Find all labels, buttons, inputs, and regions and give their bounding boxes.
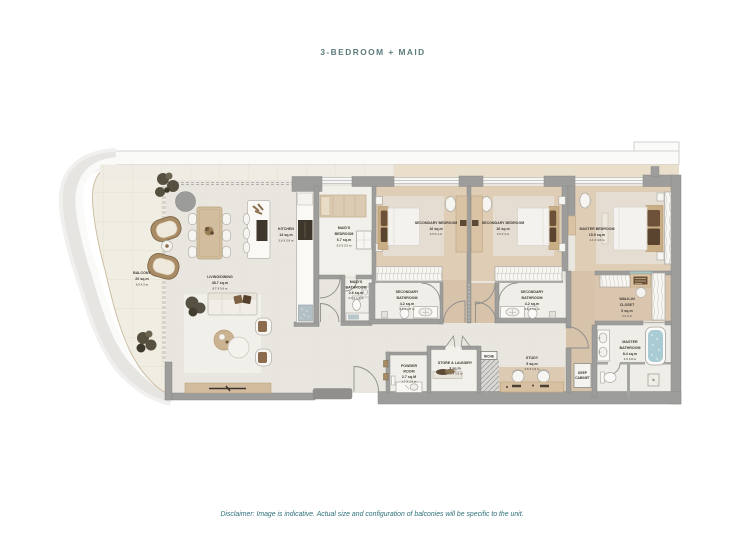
svg-text:BATHROOM: BATHROOM xyxy=(522,296,543,300)
svg-text:BALCONY: BALCONY xyxy=(133,271,151,275)
svg-text:SECONDARY BEDROOM: SECONDARY BEDROOM xyxy=(482,221,525,225)
svg-text:16 sq.m: 16 sq.m xyxy=(429,227,442,231)
svg-text:CABINET: CABINET xyxy=(575,376,590,380)
svg-text:1.7 X 1.6 m: 1.7 X 1.6 m xyxy=(402,380,417,384)
svg-text:WALK-IN: WALK-IN xyxy=(619,297,635,301)
svg-text:MASTER BEDROOM: MASTER BEDROOM xyxy=(580,227,615,231)
svg-text:BATHROOM: BATHROOM xyxy=(620,346,641,350)
svg-text:3-BEDROOM + MAID: 3-BEDROOM + MAID xyxy=(320,47,425,57)
svg-text:6 sq.m: 6 sq.m xyxy=(621,309,632,313)
svg-text:4.1 X 3.8 m: 4.1 X 3.8 m xyxy=(590,238,605,242)
svg-text:4.5 X 4 m: 4.5 X 4 m xyxy=(430,232,443,236)
svg-text:3.0 X 2.5 m: 3.0 X 2.5 m xyxy=(337,244,352,248)
svg-text:9.5 X 2 m: 9.5 X 2 m xyxy=(136,283,149,287)
svg-text:BATHROOM: BATHROOM xyxy=(397,296,418,300)
svg-text:8.4 sq.m: 8.4 sq.m xyxy=(623,352,637,356)
svg-text:2.8 X 1.5 m: 2.8 X 1.5 m xyxy=(400,307,415,311)
svg-text:15.5 sq.m: 15.5 sq.m xyxy=(589,233,605,237)
svg-text:CLOSET: CLOSET xyxy=(620,303,635,307)
svg-text:4.5 X 4 m: 4.5 X 4 m xyxy=(497,232,510,236)
svg-text:48.7 sq.m: 48.7 sq.m xyxy=(212,281,228,285)
svg-text:5.9 X 2.9 m: 5.9 X 2.9 m xyxy=(279,239,294,243)
svg-text:Disclaimer: Image is indicativ: Disclaimer: Image is indicative. Actual … xyxy=(220,511,523,518)
svg-text:NICHE: NICHE xyxy=(484,355,495,359)
svg-text:16 sq.m: 16 sq.m xyxy=(496,227,509,231)
svg-text:BEDROOM: BEDROOM xyxy=(335,232,354,236)
svg-text:DEEP: DEEP xyxy=(578,371,588,375)
svg-text:STORE & LAUNDRY: STORE & LAUNDRY xyxy=(438,361,473,365)
svg-text:2.8 X 1.8 m: 2.8 X 1.8 m xyxy=(525,367,540,371)
svg-text:6.7 sq.m: 6.7 sq.m xyxy=(337,238,351,242)
svg-text:ROOM: ROOM xyxy=(403,370,414,374)
svg-text:3 sq.m: 3 sq.m xyxy=(449,367,460,371)
svg-text:POWDER: POWDER xyxy=(401,364,418,368)
svg-text:MAID'S: MAID'S xyxy=(350,280,363,284)
svg-text:8.7 X 5.6 m: 8.7 X 5.6 m xyxy=(213,287,228,291)
svg-text:LIVING/DINING: LIVING/DINING xyxy=(207,275,233,279)
svg-text:SECONDARY: SECONDARY xyxy=(396,290,419,294)
svg-text:SECONDARY: SECONDARY xyxy=(521,290,544,294)
svg-text:2.4 X 1.3 m: 2.4 X 1.3 m xyxy=(349,296,364,300)
svg-text:2.7 sq.M: 2.7 sq.M xyxy=(402,375,416,379)
svg-text:20 sq.m: 20 sq.m xyxy=(135,277,148,281)
svg-text:STUDY: STUDY xyxy=(526,356,539,360)
svg-text:2.6 sq.m: 2.6 sq.m xyxy=(349,291,363,295)
svg-text:SECONDARY BEDROOM: SECONDARY BEDROOM xyxy=(415,221,458,225)
svg-text:4.2 sq.m: 4.2 sq.m xyxy=(400,302,414,306)
svg-text:5 sq.m: 5 sq.m xyxy=(526,362,537,366)
svg-text:MASTER: MASTER xyxy=(622,340,638,344)
svg-text:4.2 sq.m: 4.2 sq.m xyxy=(525,302,539,306)
svg-text:BATHROOM: BATHROOM xyxy=(346,286,367,290)
svg-text:3 X 2 m: 3 X 2 m xyxy=(622,314,633,318)
svg-text:2.8 X 1.5 m: 2.8 X 1.5 m xyxy=(525,307,540,311)
svg-text:14 sq.m: 14 sq.m xyxy=(279,233,292,237)
svg-text:KITCHEN: KITCHEN xyxy=(278,227,294,231)
svg-text:3 X 2.8 m: 3 X 2.8 m xyxy=(624,357,637,361)
svg-text:MAID'S: MAID'S xyxy=(338,226,351,230)
svg-text:1.9 X 1.6 m: 1.9 X 1.6 m xyxy=(448,372,463,376)
